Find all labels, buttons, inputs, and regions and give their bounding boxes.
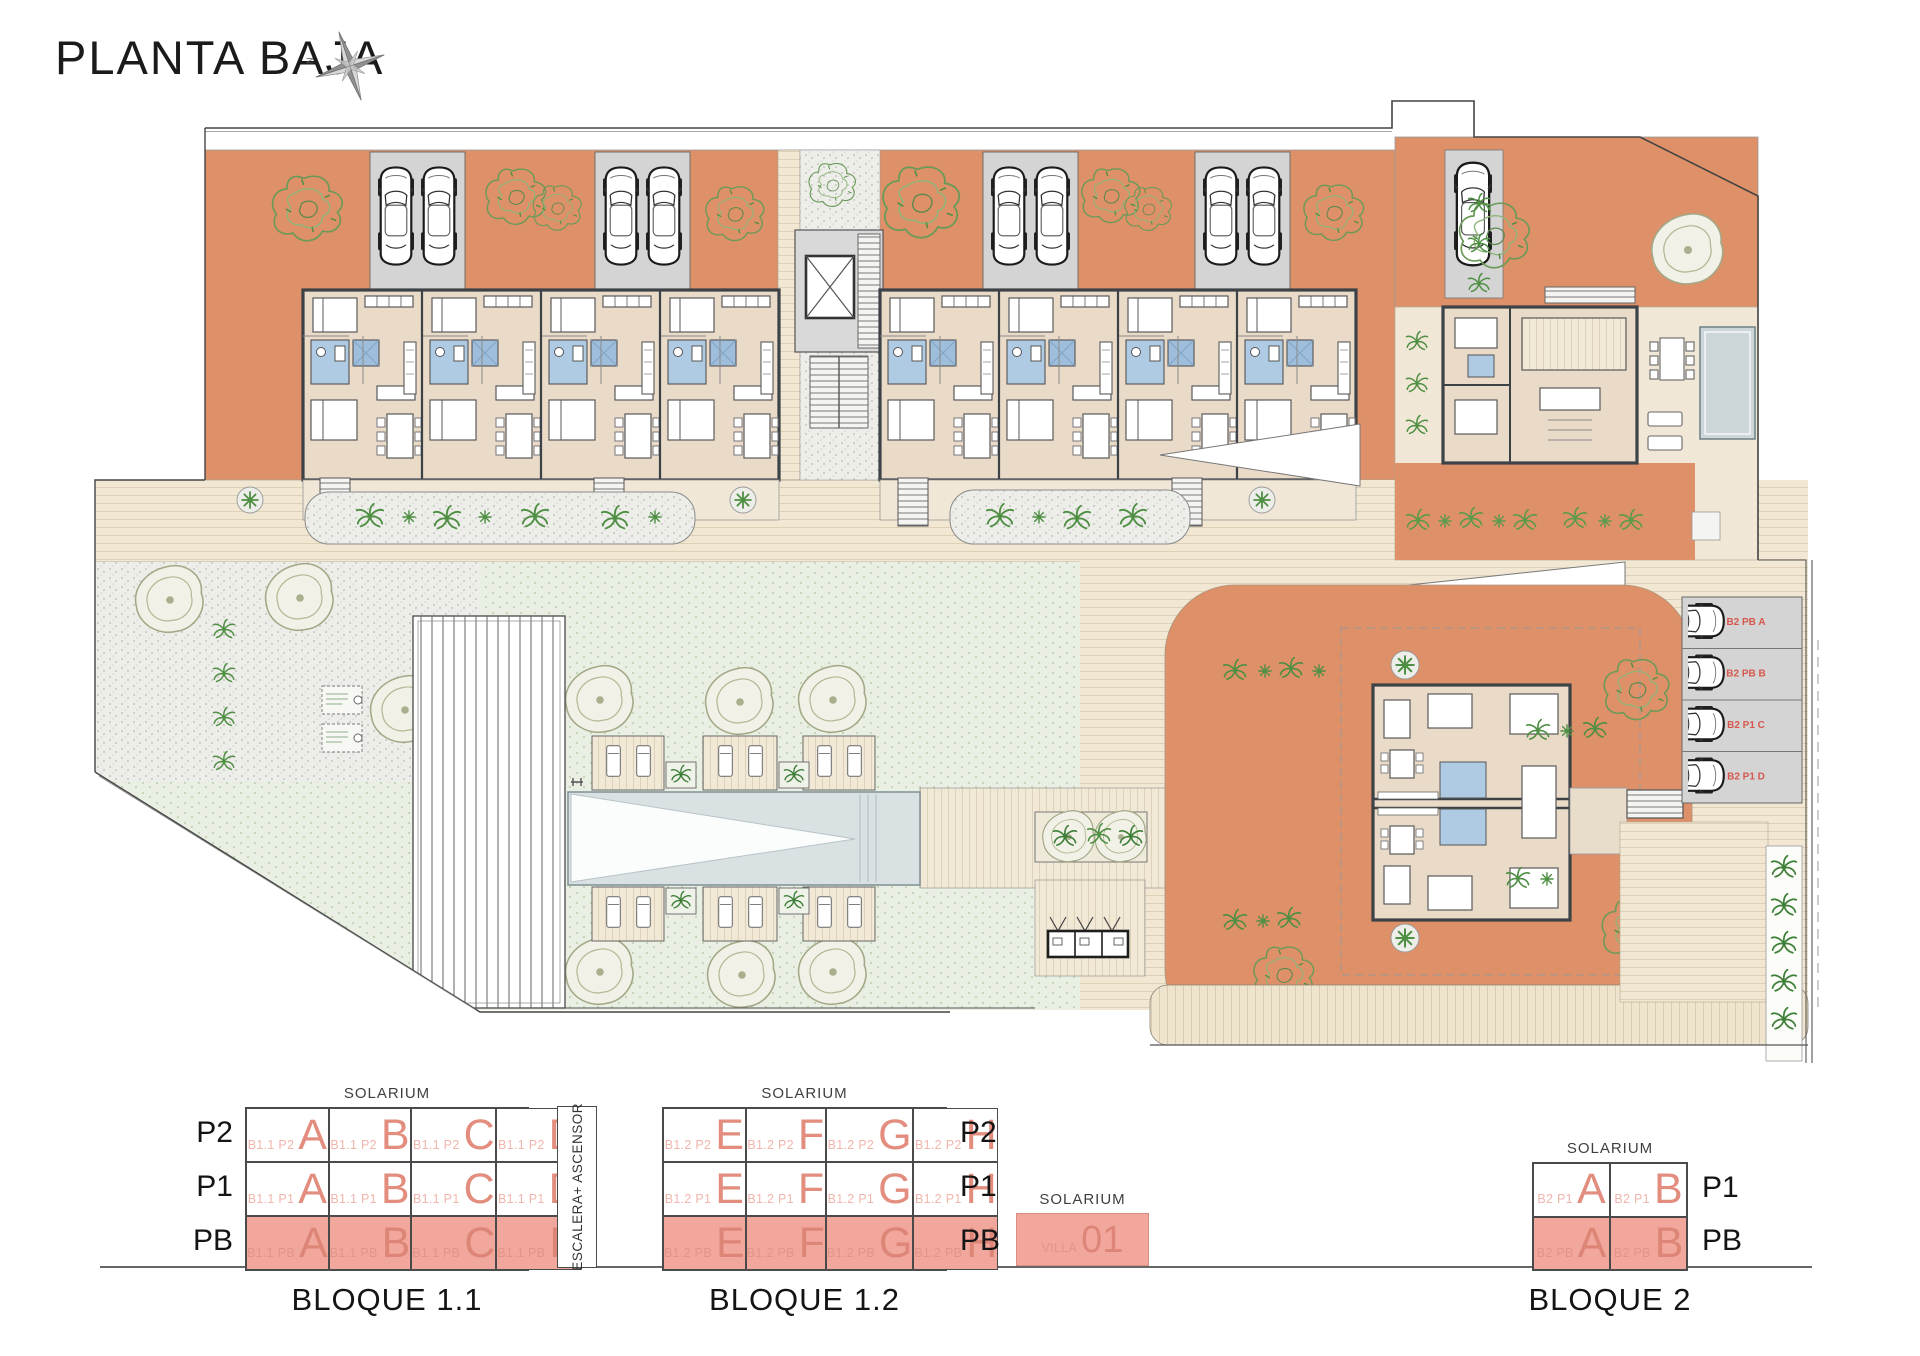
shrub-icon bbox=[1257, 915, 1269, 927]
shrub-icon bbox=[242, 492, 258, 508]
parking-label: B2 P1 D bbox=[1727, 772, 1765, 783]
site-plan: B2 PB A B2 PB B B2 P1 C B2 P1 D bbox=[0, 0, 1920, 1075]
sun-lounger-icon bbox=[749, 897, 763, 928]
parking-label: B2 PB B bbox=[1726, 669, 1765, 680]
floor-label: P1 bbox=[1702, 1161, 1782, 1215]
pergola bbox=[413, 616, 565, 1008]
villa-plot bbox=[1395, 137, 1758, 560]
shrub-icon bbox=[479, 511, 491, 523]
shrub-icon bbox=[1561, 725, 1573, 737]
shrub-icon bbox=[1033, 511, 1045, 523]
unit-cell: B1.1 P1A bbox=[246, 1162, 329, 1216]
unit-cell: B1.1 P2A bbox=[246, 1108, 329, 1162]
sun-lounger-icon bbox=[719, 897, 733, 928]
car-icon bbox=[1246, 167, 1282, 264]
car-icon bbox=[378, 167, 414, 264]
floor-label: PB bbox=[1702, 1215, 1782, 1269]
sun-lounger-icon bbox=[818, 897, 832, 928]
sun-lounger-icon bbox=[607, 897, 621, 928]
shrub-icon bbox=[1313, 665, 1325, 677]
unit-cell: B1.1 P1B bbox=[329, 1162, 412, 1216]
unit-cell: B1.2 P2G bbox=[826, 1108, 913, 1162]
sun-lounger-icon bbox=[848, 897, 862, 928]
shrub-icon bbox=[1439, 515, 1451, 527]
unit-cell: B1.1 P2C bbox=[411, 1108, 496, 1162]
unit-cell: B1.2 P2F bbox=[746, 1108, 826, 1162]
stair-elevator-box: ESCALERA+ ASCENSOR bbox=[557, 1106, 597, 1268]
unit-cell: B2 P1B bbox=[1610, 1163, 1687, 1217]
car-icon bbox=[646, 167, 682, 264]
unit-cell-highlighted: B1.1 PBC bbox=[411, 1216, 496, 1270]
car-icon bbox=[421, 167, 457, 264]
unit-cell: B1.2 P1F bbox=[746, 1162, 826, 1216]
car-icon bbox=[603, 167, 639, 264]
unit-cell: B1.2 P2E bbox=[663, 1108, 746, 1162]
unit-cell-highlighted: B1.1 PBA bbox=[246, 1216, 329, 1270]
bloque-1-1-floor-labels: P2 P1 PB bbox=[125, 1106, 233, 1268]
unit-cell: B1.2 P1G bbox=[826, 1162, 913, 1216]
sun-lounger-icon bbox=[848, 746, 862, 777]
floor-label: PB bbox=[125, 1214, 233, 1268]
unit-cell-highlighted: B1.2 PBE bbox=[663, 1216, 746, 1270]
unit-cell: B1.1 P2B bbox=[329, 1108, 412, 1162]
villa-building bbox=[1443, 307, 1637, 463]
car-icon bbox=[991, 167, 1027, 264]
solarium-label: SOLARIUM bbox=[1016, 1191, 1149, 1208]
bloque-1-2-diagram: SOLARIUM B1.2 P2E B1.2 P2F B1.2 P2G B1.2… bbox=[662, 1085, 947, 1271]
solarium-label: SOLARIUM bbox=[662, 1085, 947, 1102]
sun-lounger-icon bbox=[818, 746, 832, 777]
bloque-2-zone bbox=[1165, 585, 1692, 1040]
bloque-1-1-title: BLOQUE 1.1 bbox=[245, 1282, 529, 1318]
floor-label: P2 bbox=[125, 1106, 233, 1160]
villa-diagram: SOLARIUM VILLA01 bbox=[1016, 1191, 1149, 1266]
shrub-icon bbox=[1396, 656, 1414, 674]
bloque-2-floor-labels: P1 PB bbox=[1702, 1161, 1782, 1268]
bloque-1-1-diagram: SOLARIUM B1.1 P2A B1.1 P2B B1.1 P2C B1.1… bbox=[245, 1085, 529, 1271]
villa-pool bbox=[1700, 327, 1755, 439]
shrub-icon bbox=[649, 511, 661, 523]
sun-lounger-icon bbox=[607, 746, 621, 777]
escalera-label: ESCALERA+ ASCENSOR bbox=[570, 1103, 585, 1271]
car-icon bbox=[1454, 163, 1492, 266]
shrub-icon bbox=[1396, 929, 1414, 947]
pool-side-planter bbox=[1035, 811, 1147, 862]
shrub-icon bbox=[1541, 873, 1553, 885]
unit-cell-highlighted: B2 PBB bbox=[1610, 1217, 1687, 1271]
unit-cell: B1.1 P1C bbox=[411, 1162, 496, 1216]
shrub-icon bbox=[1493, 515, 1505, 527]
parking-label: B2 P1 C bbox=[1727, 720, 1765, 731]
sun-lounger-icon bbox=[749, 746, 763, 777]
car-icon bbox=[1203, 167, 1239, 264]
stairs bbox=[1627, 790, 1683, 818]
shrub-icon bbox=[1254, 492, 1270, 508]
stair-elevator-core bbox=[778, 150, 883, 480]
solarium-label: SOLARIUM bbox=[245, 1085, 529, 1102]
shrub-icon bbox=[1259, 665, 1271, 677]
sun-lounger-icon bbox=[637, 897, 651, 928]
shrub-icon bbox=[403, 511, 415, 523]
pool-toilets-block bbox=[1035, 880, 1145, 976]
sun-lounger-icon bbox=[719, 746, 733, 777]
shrub-icon bbox=[1599, 515, 1611, 527]
shrub-icon bbox=[735, 492, 751, 508]
bloque-1-2-title: BLOQUE 1.2 bbox=[662, 1282, 947, 1318]
unit-cell-highlighted: B1.2 PBG bbox=[826, 1216, 913, 1270]
unit-cell-highlighted: B1.2 PBF bbox=[746, 1216, 826, 1270]
unit-cell-highlighted: B2 PBA bbox=[1533, 1217, 1610, 1271]
floor-label: P2 bbox=[960, 1106, 1050, 1160]
unit-cell-highlighted: B1.1 PBB bbox=[329, 1216, 412, 1270]
stairs bbox=[858, 234, 880, 348]
unit-cell: B2 P1A bbox=[1533, 1163, 1610, 1217]
bloque-2-title: BLOQUE 2 bbox=[1512, 1282, 1708, 1318]
solarium-label: SOLARIUM bbox=[1532, 1140, 1688, 1157]
floor-label: P1 bbox=[125, 1160, 233, 1214]
parking-label: B2 PB A bbox=[1726, 617, 1765, 628]
unit-cell: B1.2 P1E bbox=[663, 1162, 746, 1216]
villa-cell: VILLA01 bbox=[1016, 1213, 1149, 1266]
bloque-1-1-building bbox=[303, 290, 779, 480]
sun-lounger-icon bbox=[637, 746, 651, 777]
bloque-2-diagram: SOLARIUM B2 P1A B2 P1B B2 PBA B2 PBB bbox=[1532, 1140, 1688, 1271]
car-icon bbox=[1034, 167, 1070, 264]
